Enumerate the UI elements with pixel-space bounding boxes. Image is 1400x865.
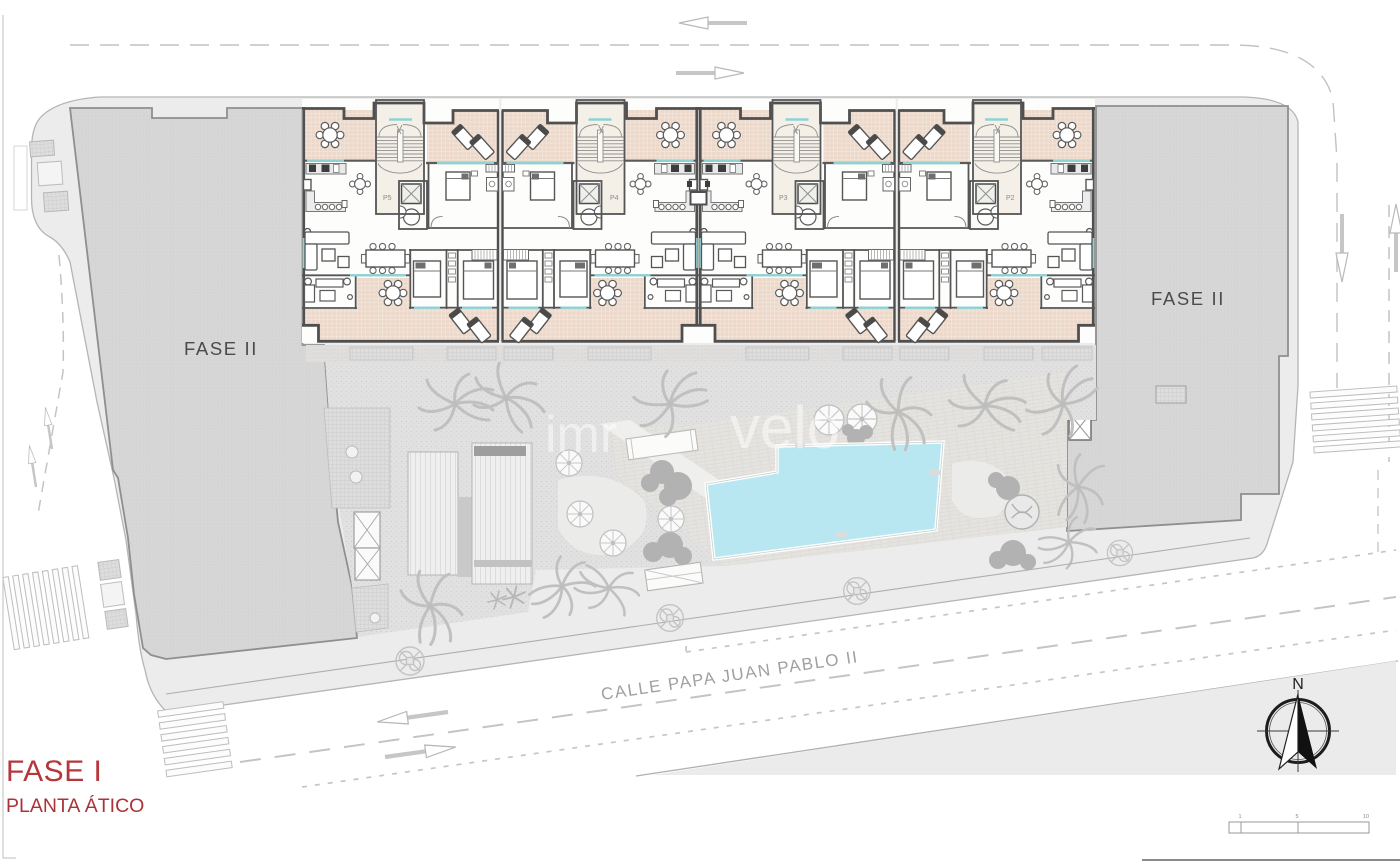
svg-text:FASE I: FASE I (6, 755, 102, 788)
svg-text:P4: P4 (610, 195, 619, 202)
svg-text:imr: imr (545, 406, 617, 464)
svg-text:N: N (1292, 676, 1304, 693)
svg-text:P2: P2 (1006, 195, 1015, 202)
svg-text:10: 10 (1363, 814, 1369, 820)
svg-text:velo: velo (730, 394, 840, 461)
svg-text:P5: P5 (383, 195, 392, 202)
svg-text:5: 5 (1295, 814, 1298, 820)
svg-text:FASE II: FASE II (1151, 288, 1225, 309)
svg-text:FASE II: FASE II (184, 338, 258, 359)
svg-text:P3: P3 (779, 195, 788, 202)
svg-text:1: 1 (1238, 814, 1241, 820)
svg-text:PLANTA ÁTICO: PLANTA ÁTICO (6, 794, 144, 817)
